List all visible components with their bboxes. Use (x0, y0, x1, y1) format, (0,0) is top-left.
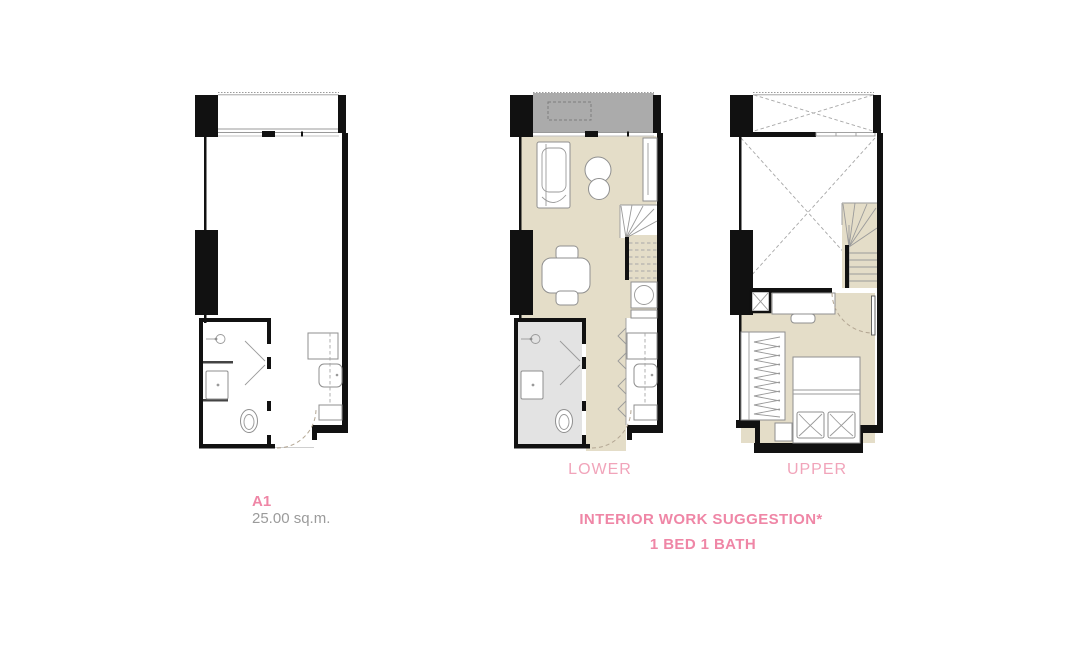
nightstand (775, 423, 792, 441)
counter-top (627, 333, 657, 359)
void-over-balcony (753, 93, 874, 132)
round-table (589, 179, 610, 200)
kitchen-sink (634, 364, 657, 387)
bed-bath-count: 1 BED 1 BATH (650, 536, 756, 553)
floorplan-lower (508, 85, 668, 465)
dining-table (542, 258, 590, 293)
shaft (751, 291, 770, 312)
stairs (620, 205, 657, 288)
upper-plan-label: UPPER (787, 461, 847, 479)
balcony (218, 93, 339, 130)
kitchen-fixtures (308, 333, 342, 423)
dining-chair (556, 291, 578, 305)
counter-top (308, 333, 338, 359)
bathroom-fixtures (206, 335, 265, 433)
unit-area-label: 25.00 sq.m. (252, 510, 330, 527)
entry-door-swing (277, 409, 316, 448)
pivot-door (245, 341, 265, 361)
tv-cabinet (643, 138, 657, 201)
unit-code-label: A1 (252, 493, 271, 510)
stairs (842, 203, 877, 288)
pivot-door (245, 365, 265, 385)
kitchen-sink (319, 364, 342, 387)
desk-chair (791, 314, 815, 323)
floorplan-a1-shell (193, 85, 353, 465)
desk (772, 293, 835, 314)
kitchen-fixtures (627, 333, 657, 423)
floorplan-upper (728, 85, 888, 465)
lower-plan-label: LOWER (568, 461, 632, 479)
loft-railing (753, 132, 875, 137)
door-leaf (872, 296, 876, 335)
floorplan-sheet: A1 25.00 sq.m. LOWER UPPER INTERIOR WORK… (0, 0, 1080, 648)
interior-suggestion-note: INTERIOR WORK SUGGESTION* (579, 511, 822, 528)
window-line (218, 131, 339, 137)
balcony (533, 93, 654, 134)
bathroom (518, 322, 582, 444)
